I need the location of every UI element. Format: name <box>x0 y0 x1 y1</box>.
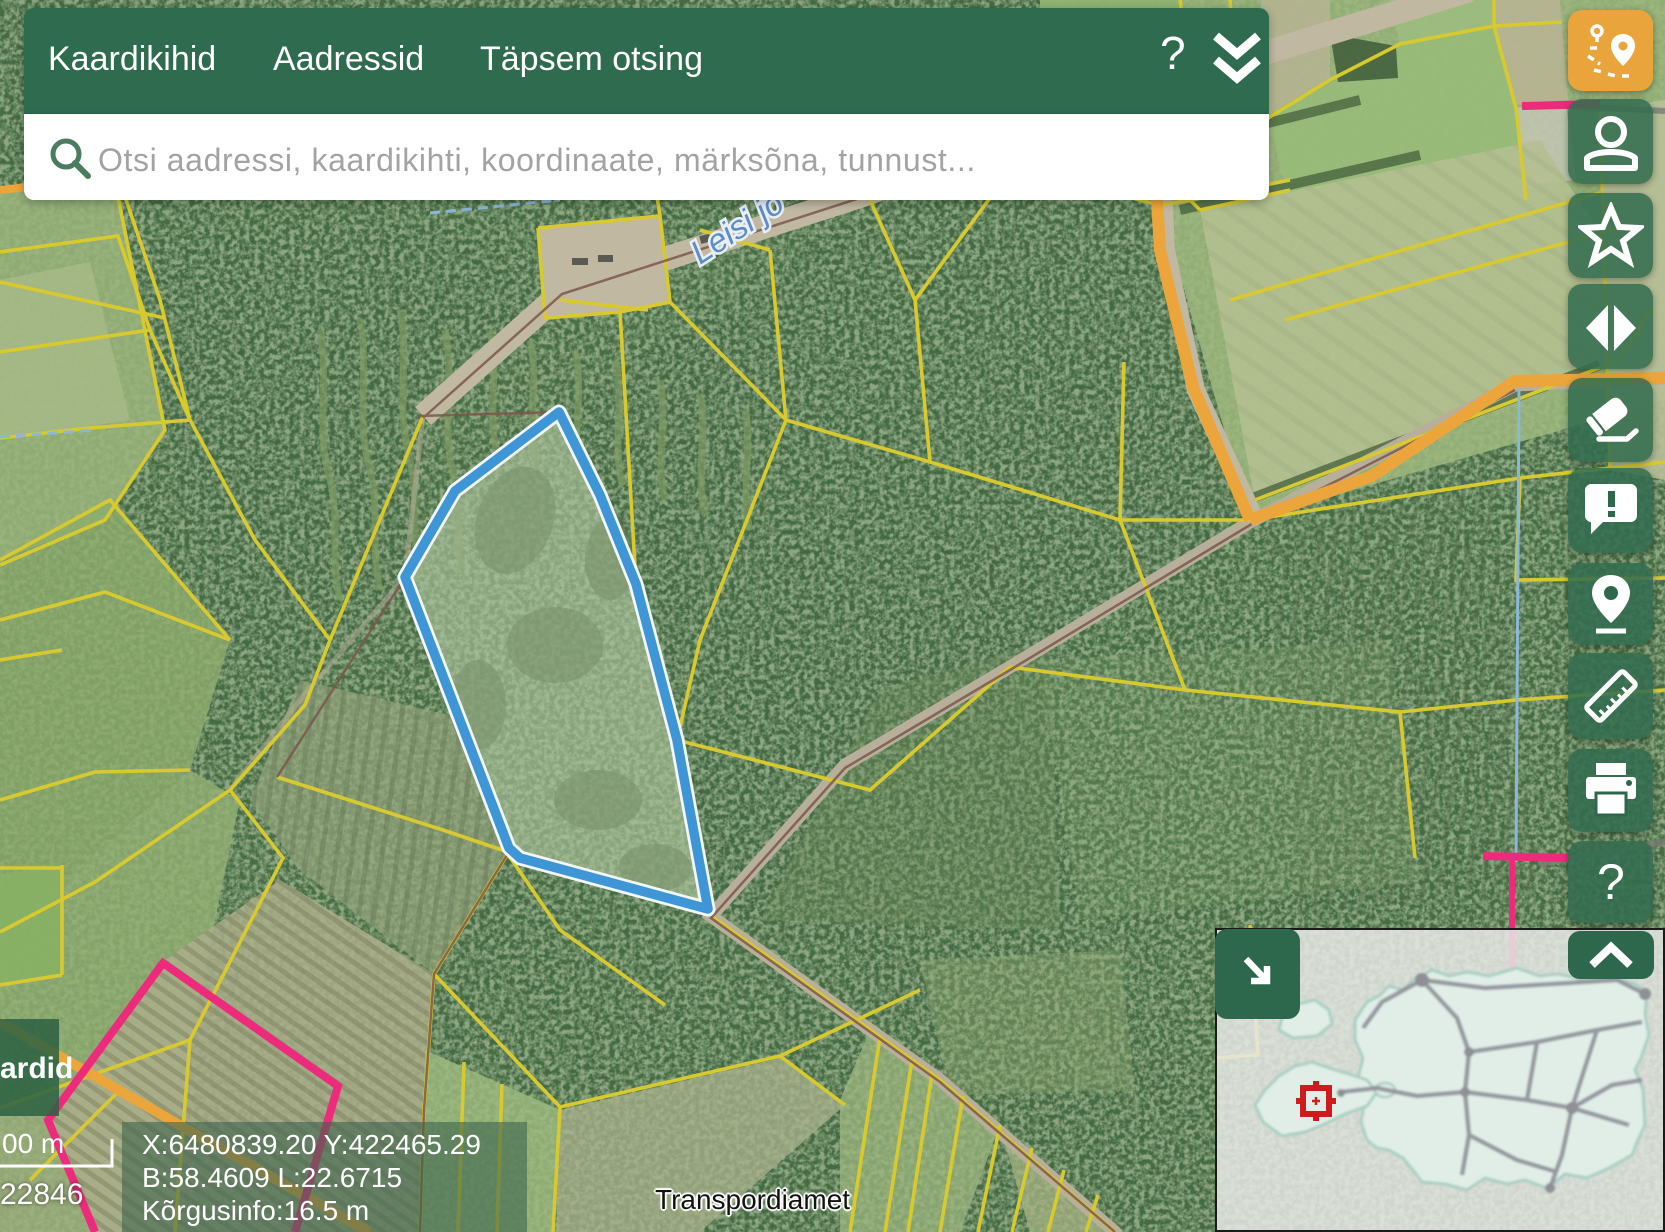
svg-text:00 m: 00 m <box>2 1128 64 1159</box>
